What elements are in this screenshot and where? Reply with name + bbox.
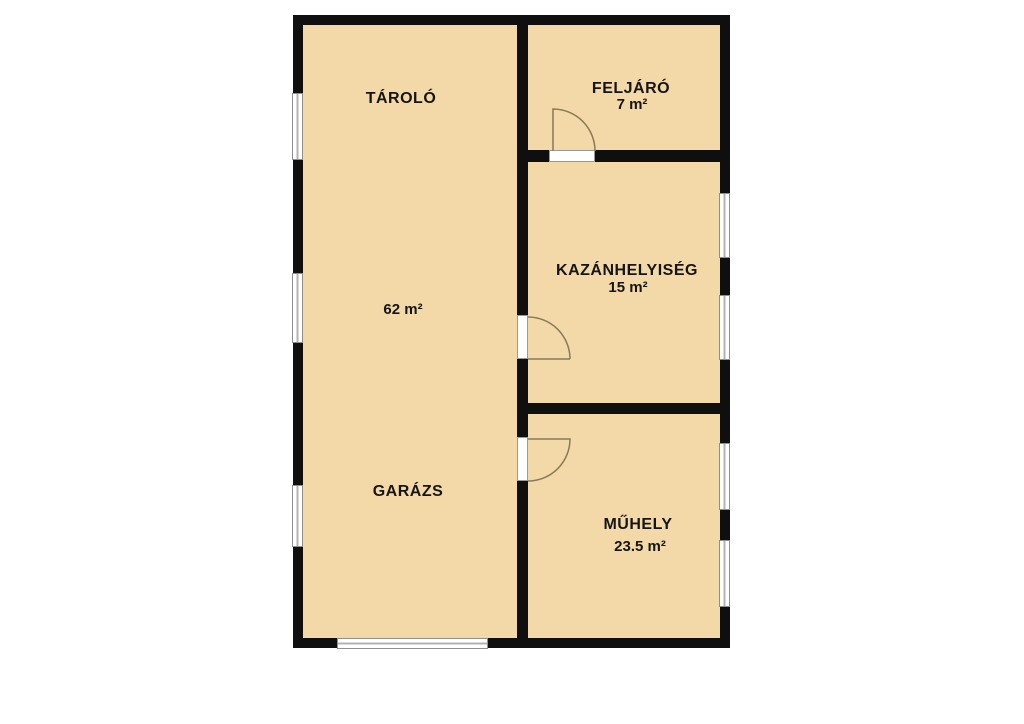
window-icon [292, 485, 303, 547]
room-label-garazs: GARÁZS [373, 483, 444, 501]
window-icon [719, 193, 730, 258]
interior-wall-kazan-muhely [517, 403, 730, 414]
window-icon [719, 295, 730, 360]
room-label-muhely: MŰHELY [603, 516, 672, 534]
window-icon [719, 443, 730, 510]
room-area-kazanhelyiseg: 15 m² [608, 279, 647, 296]
window-icon [719, 540, 730, 607]
room-area-muhely: 23.5 m² [614, 538, 666, 555]
garage-door-icon [337, 638, 488, 649]
room-area-feljaro: 7 m² [617, 96, 648, 113]
door-threshold-feljaro [549, 150, 595, 162]
window-icon [292, 93, 303, 160]
door-threshold-kazan [517, 315, 528, 359]
room-label-tarolo: TÁROLÓ [366, 90, 437, 108]
window-icon [292, 273, 303, 343]
room-label-kazanhelyiseg: KAZÁNHELYISÉG [556, 262, 698, 280]
door-threshold-muhely [517, 437, 528, 481]
floor-plan-canvas: TÁROLÓ FELJÁRÓ 7 m² KAZÁNHELYISÉG 15 m² … [0, 0, 1024, 724]
room-area-garazs: 62 m² [383, 301, 422, 318]
